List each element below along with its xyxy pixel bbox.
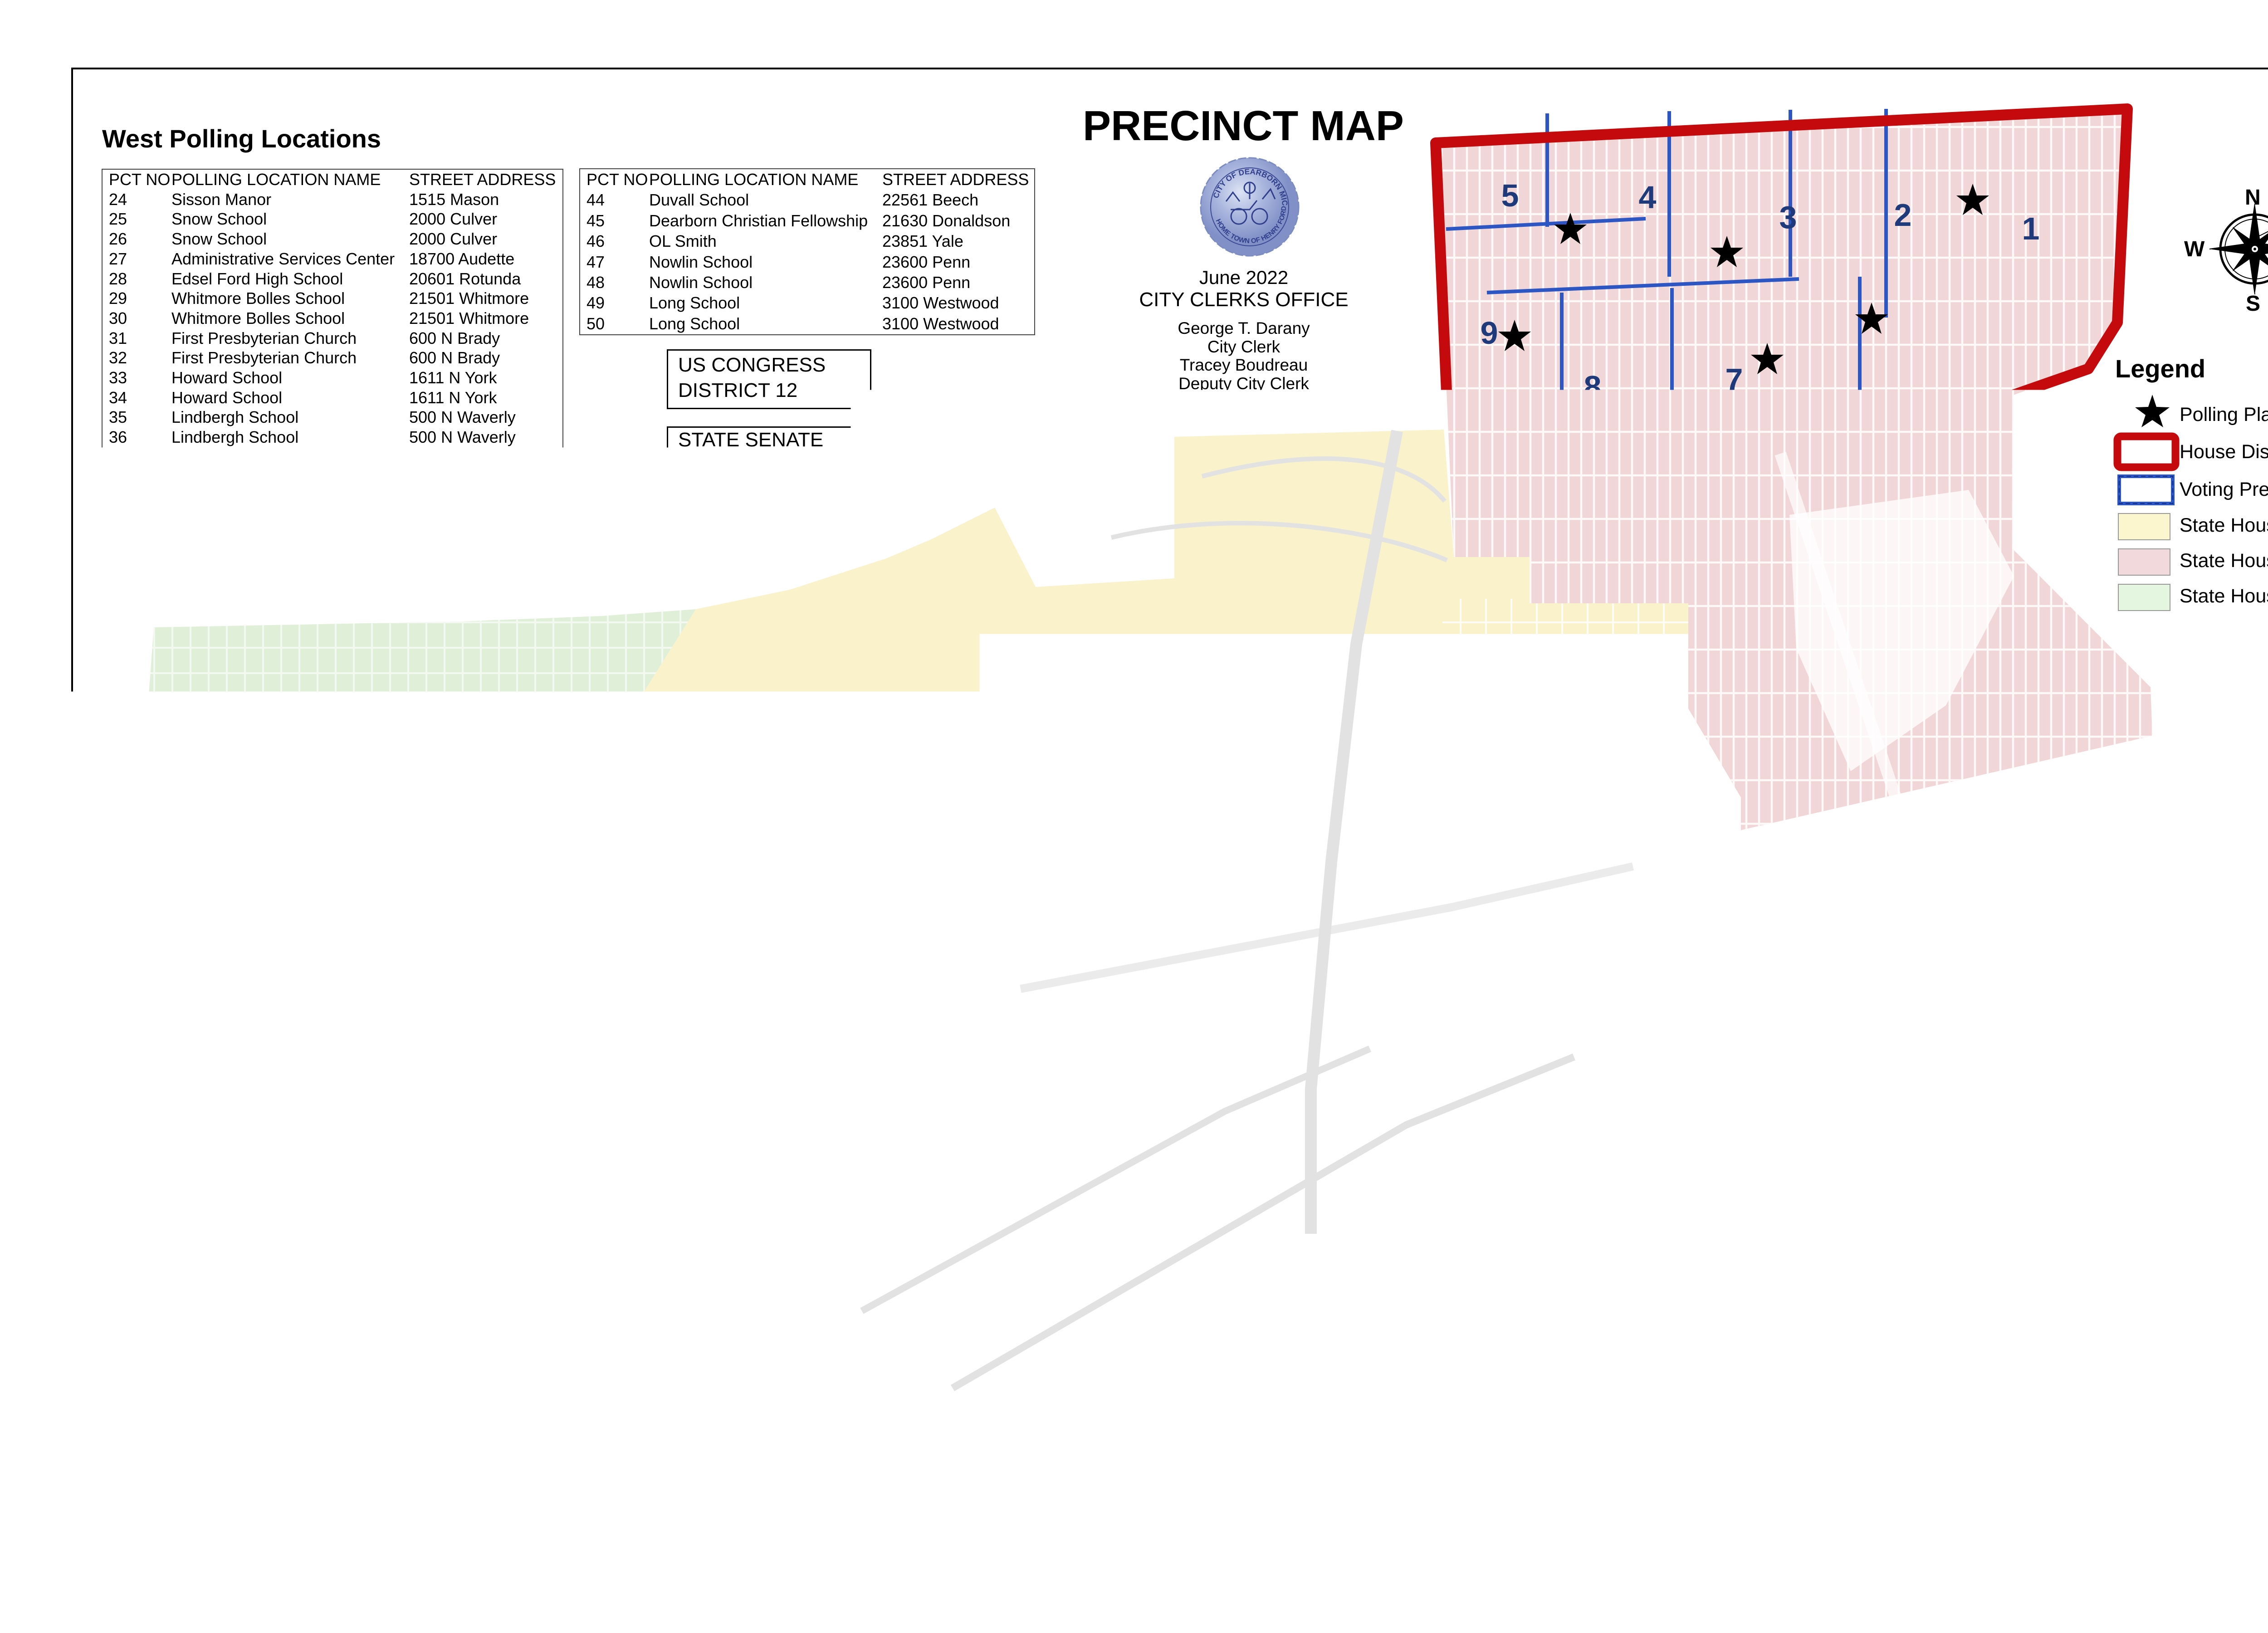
svg-text:1: 1 bbox=[2022, 211, 2040, 246]
svg-text:12: 12 bbox=[1515, 486, 1550, 521]
svg-text:18: 18 bbox=[1869, 673, 1905, 709]
svg-text:11: 11 bbox=[1620, 528, 1654, 564]
svg-text:49: 49 bbox=[329, 1302, 365, 1338]
svg-text:29: 29 bbox=[714, 1366, 749, 1401]
svg-text:16: 16 bbox=[1506, 694, 1542, 729]
svg-text:26: 26 bbox=[1005, 1350, 1040, 1385]
svg-text:37: 37 bbox=[300, 687, 335, 722]
svg-text:20: 20 bbox=[2176, 1112, 2211, 1147]
svg-text:24: 24 bbox=[996, 1091, 1031, 1126]
svg-text:48: 48 bbox=[437, 1388, 473, 1423]
svg-text:28: 28 bbox=[784, 1379, 820, 1414]
svg-text:44: 44 bbox=[617, 1107, 653, 1142]
svg-text:5: 5 bbox=[1501, 178, 1519, 213]
svg-text:38: 38 bbox=[295, 843, 330, 879]
svg-text:33: 33 bbox=[541, 665, 576, 700]
svg-text:22: 22 bbox=[1611, 1066, 1646, 1101]
svg-text:38: 38 bbox=[229, 672, 264, 708]
svg-text:37: 37 bbox=[170, 670, 205, 705]
svg-text:43: 43 bbox=[509, 947, 545, 983]
svg-text:41: 41 bbox=[271, 994, 306, 1030]
svg-text:19: 19 bbox=[1602, 777, 1637, 813]
svg-text:17: 17 bbox=[1297, 682, 1332, 717]
svg-text:6: 6 bbox=[1915, 407, 1933, 442]
svg-text:21: 21 bbox=[1969, 978, 2004, 1013]
svg-text:42: 42 bbox=[404, 1066, 439, 1101]
svg-text:8: 8 bbox=[1584, 369, 1602, 405]
svg-text:10: 10 bbox=[1713, 513, 1749, 548]
svg-text:7: 7 bbox=[1725, 362, 1743, 397]
svg-text:36: 36 bbox=[404, 810, 440, 845]
svg-text:23: 23 bbox=[1441, 960, 1476, 995]
svg-text:50: 50 bbox=[246, 1287, 281, 1322]
svg-text:15: 15 bbox=[1611, 635, 1646, 670]
svg-text:9: 9 bbox=[1481, 315, 1498, 351]
svg-text:47: 47 bbox=[562, 1386, 597, 1421]
svg-text:40: 40 bbox=[186, 903, 222, 938]
svg-text:25: 25 bbox=[1182, 1266, 1217, 1301]
svg-text:13: 13 bbox=[1484, 585, 1519, 620]
svg-text:27: 27 bbox=[1050, 1431, 1085, 1467]
svg-text:35: 35 bbox=[500, 814, 535, 849]
svg-text:45: 45 bbox=[645, 1215, 680, 1250]
svg-text:4: 4 bbox=[1639, 180, 1657, 215]
svg-text:32: 32 bbox=[659, 919, 694, 954]
svg-text:34: 34 bbox=[396, 671, 431, 707]
svg-text:3: 3 bbox=[1779, 200, 1797, 235]
svg-text:46: 46 bbox=[453, 1220, 489, 1256]
svg-text:30: 30 bbox=[664, 1391, 699, 1427]
svg-text:31: 31 bbox=[931, 779, 967, 814]
svg-text:2: 2 bbox=[1894, 197, 1912, 233]
